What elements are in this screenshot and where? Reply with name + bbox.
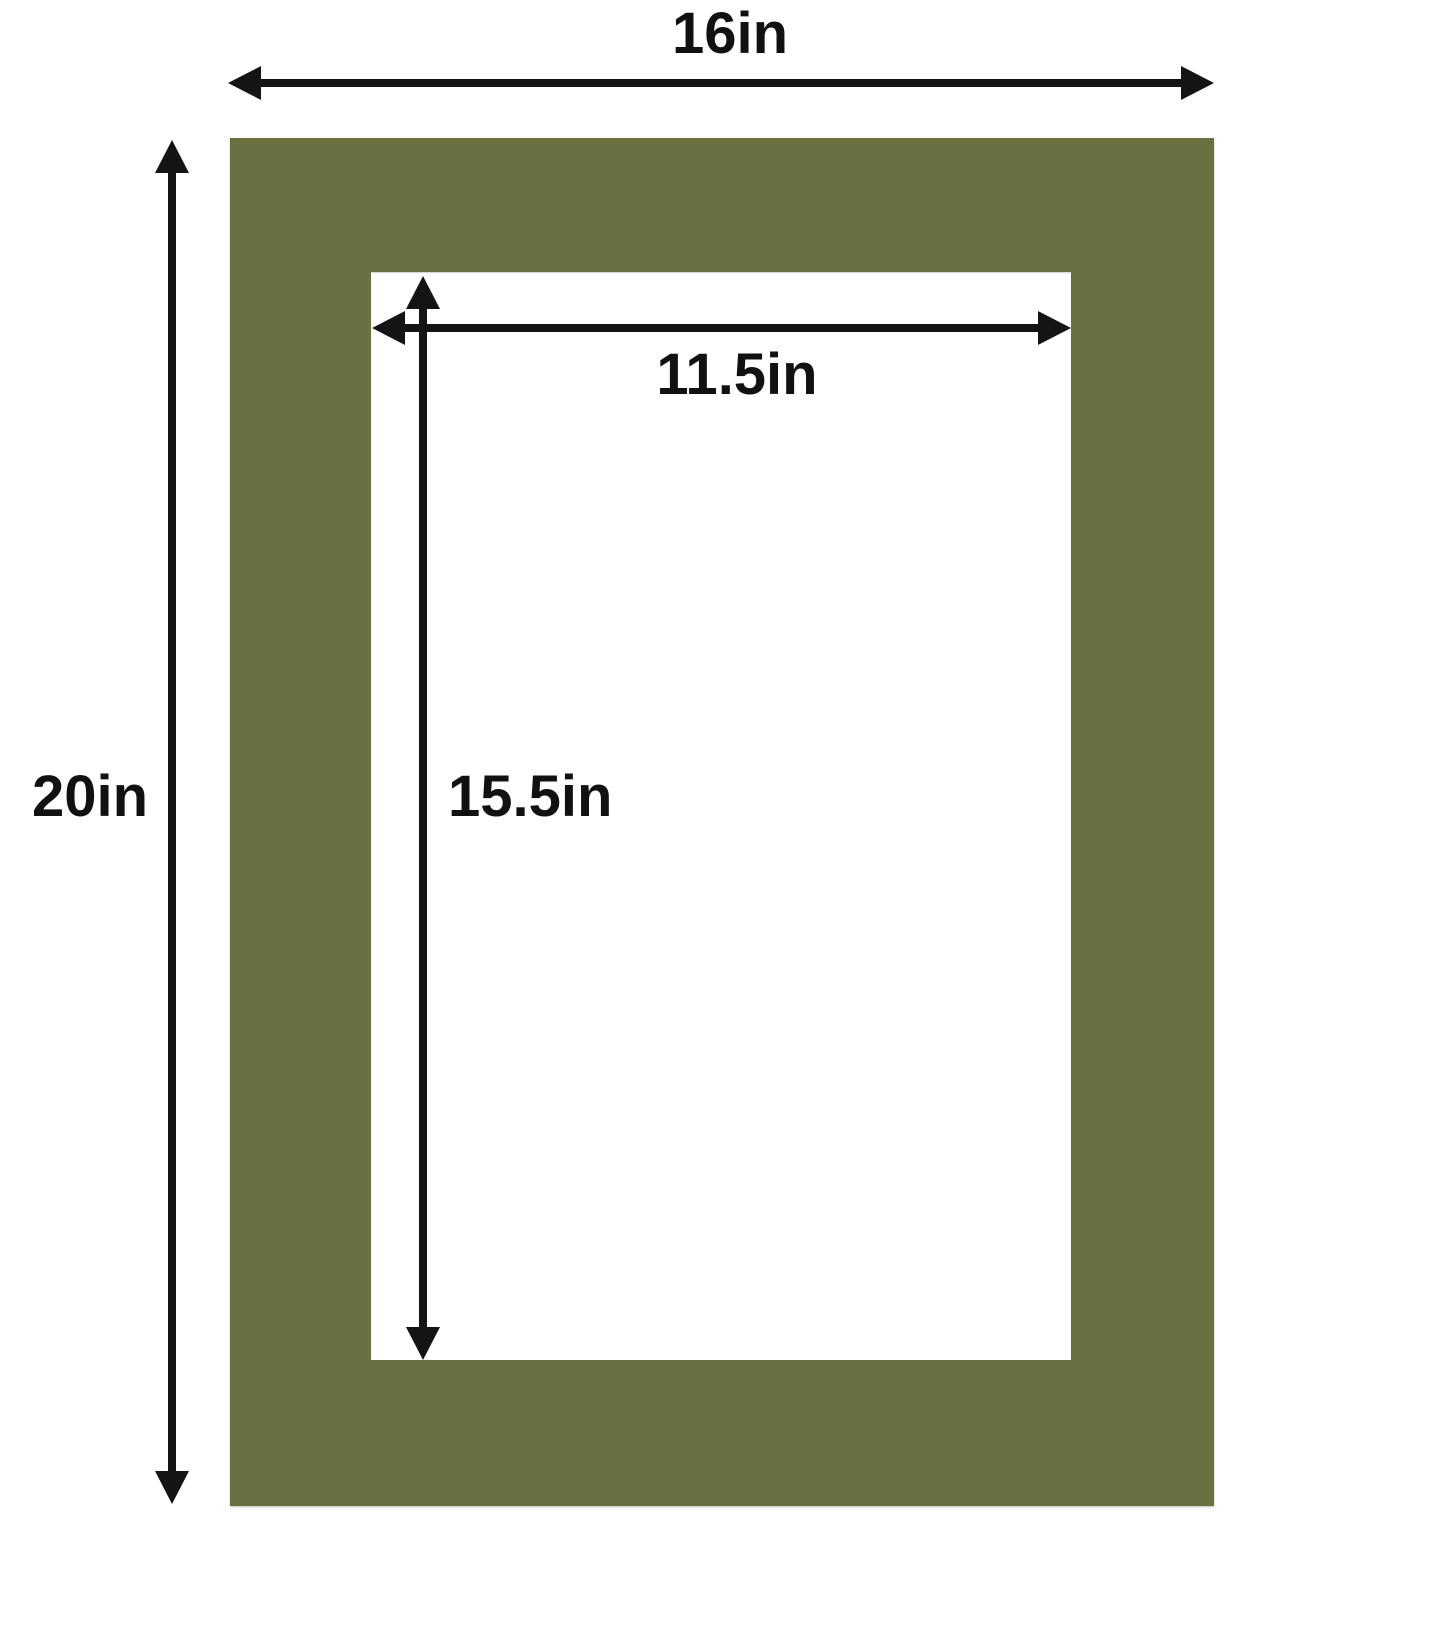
arrow-line <box>396 324 1047 332</box>
arrowhead-right-icon <box>1181 66 1214 100</box>
opening-width-arrow <box>372 311 1071 345</box>
outer-height-label: 20in <box>10 768 170 826</box>
mat-dimension-diagram: 16in 20in 11.5in 15.5in <box>0 0 1445 1645</box>
opening-height-arrow <box>406 276 440 1360</box>
arrow-line <box>252 79 1190 87</box>
arrow-line <box>419 300 427 1336</box>
outer-width-label: 16in <box>530 5 930 63</box>
outer-width-arrow <box>228 66 1214 100</box>
opening-height-label: 15.5in <box>448 768 612 826</box>
arrowhead-down-icon <box>155 1471 189 1504</box>
arrowhead-down-icon <box>406 1327 440 1360</box>
arrowhead-right-icon <box>1038 311 1071 345</box>
opening-width-label: 11.5in <box>537 346 937 404</box>
